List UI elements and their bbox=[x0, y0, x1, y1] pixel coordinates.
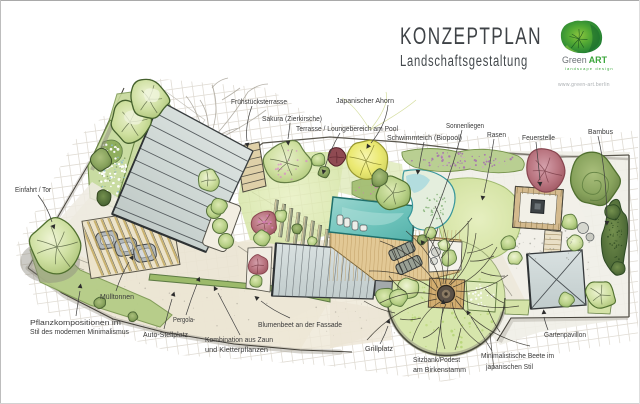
svg-text:Japanischer Ahorn: Japanischer Ahorn bbox=[336, 96, 394, 105]
svg-text:Einfahrt / Tor: Einfahrt / Tor bbox=[15, 185, 51, 194]
svg-text:Rasen: Rasen bbox=[487, 130, 506, 139]
svg-text:Auto-Stellplatz: Auto-Stellplatz bbox=[143, 330, 188, 339]
svg-text:Pflanzkompositionen im: Pflanzkompositionen im bbox=[30, 318, 121, 327]
svg-text:japanischen Stil: japanischen Stil bbox=[485, 362, 533, 371]
svg-text:Frühstücksterrasse: Frühstücksterrasse bbox=[231, 97, 287, 106]
svg-text:Landschaftsgestaltung: Landschaftsgestaltung bbox=[400, 53, 528, 70]
svg-text:und Kletterpflanzen: und Kletterpflanzen bbox=[205, 345, 268, 354]
svg-text:Green ART: Green ART bbox=[562, 55, 607, 66]
svg-text:Kombination aus Zaun: Kombination aus Zaun bbox=[205, 335, 273, 344]
svg-text:Mülltonnen: Mülltonnen bbox=[100, 292, 134, 301]
svg-text:landscape design: landscape design bbox=[565, 66, 614, 71]
svg-text:KONZEPTPLAN: KONZEPTPLAN bbox=[400, 23, 542, 50]
svg-text:Blumenbeet an der Fassade: Blumenbeet an der Fassade bbox=[258, 320, 342, 329]
svg-text:Schwimmteich (Biopool): Schwimmteich (Biopool) bbox=[387, 133, 462, 142]
svg-text:Feuerstelle: Feuerstelle bbox=[522, 133, 555, 142]
svg-text:www.green-art.berlin: www.green-art.berlin bbox=[558, 82, 610, 88]
svg-text:Sitzbank/Podest: Sitzbank/Podest bbox=[413, 355, 461, 364]
svg-text:Gartenpavillon: Gartenpavillon bbox=[544, 330, 586, 339]
svg-text:Terrasse / Loungebereich am Po: Terrasse / Loungebereich am Pool bbox=[296, 124, 398, 133]
svg-text:Bambus: Bambus bbox=[588, 127, 613, 136]
svg-text:Sonnenliegen: Sonnenliegen bbox=[446, 121, 484, 130]
svg-text:Stil des modernen Minimalismus: Stil des modernen Minimalismus bbox=[30, 327, 129, 336]
svg-text:Sakura (Zierkirsche): Sakura (Zierkirsche) bbox=[262, 114, 322, 123]
svg-text:Pergola-: Pergola- bbox=[173, 315, 195, 324]
svg-text:Minimalistische Beete im: Minimalistische Beete im bbox=[481, 351, 554, 360]
svg-text:am Birkenstamm: am Birkenstamm bbox=[413, 365, 466, 374]
svg-text:Grillplatz: Grillplatz bbox=[365, 344, 393, 353]
